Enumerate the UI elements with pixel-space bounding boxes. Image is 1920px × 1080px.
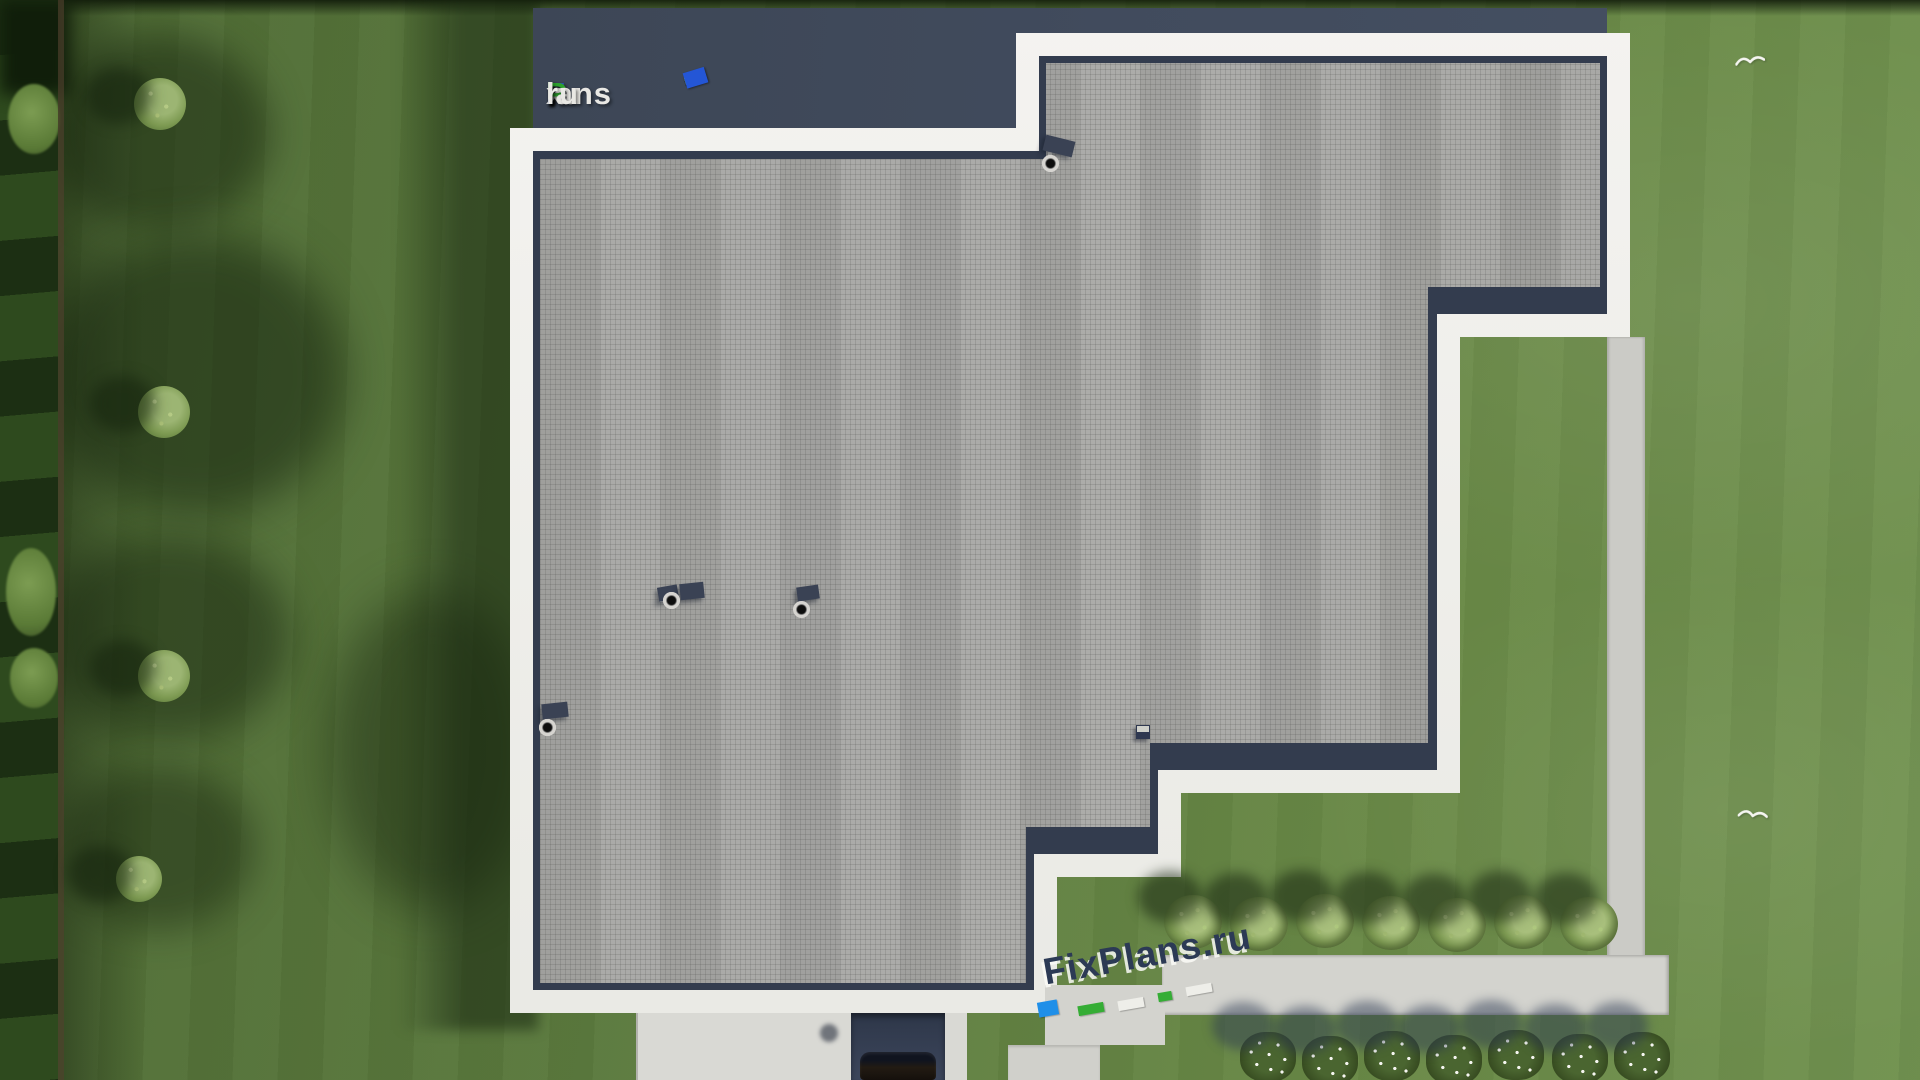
hedge-bush (10, 648, 58, 708)
roof-vent (1136, 725, 1150, 739)
hedge-shadow (64, 0, 144, 1080)
roof-vent (799, 598, 803, 602)
flower-shrub (1614, 1032, 1670, 1080)
car (860, 1052, 936, 1080)
hedge-bush (8, 84, 60, 154)
garden-path-step (1008, 1045, 1100, 1080)
vent-opening (663, 592, 680, 609)
vent-opening (1042, 155, 1059, 172)
vent-opening (793, 601, 810, 618)
small-shadow (820, 1024, 838, 1042)
vent-cap (679, 582, 705, 600)
bird-icon (1734, 50, 1766, 69)
hedge-strip (0, 0, 58, 1080)
roof-vent (1048, 152, 1052, 156)
aerial-house-render: FixPlans.ru FixPlans.ru (0, 0, 1920, 1080)
fixplans-logo: FixPlans.ru (546, 76, 786, 116)
garden-bush (116, 856, 162, 902)
hedge-bush (6, 548, 56, 636)
vent-opening (539, 719, 556, 736)
garden-bush (1560, 897, 1618, 951)
garden-bush (138, 386, 190, 438)
vent-cap (541, 702, 568, 720)
garden-path (1045, 985, 1165, 1045)
garden-bush (134, 78, 186, 130)
garden-bush (138, 650, 190, 702)
roof-vent (660, 598, 664, 602)
logo-segment: ru (546, 76, 579, 112)
roof-vent (545, 716, 549, 720)
